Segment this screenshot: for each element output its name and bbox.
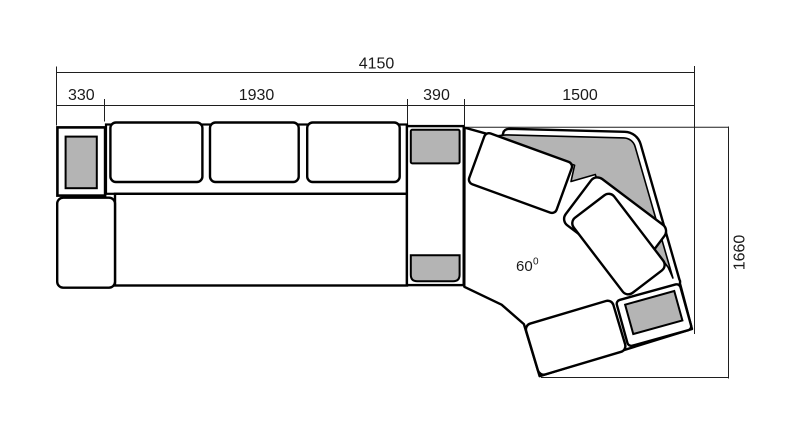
svg-text:330: 330 [68, 87, 95, 104]
svg-text:1930: 1930 [239, 87, 275, 104]
svg-text:0: 0 [533, 257, 539, 268]
svg-text:4150: 4150 [359, 56, 395, 73]
svg-text:60: 60 [516, 258, 533, 275]
svg-text:1660: 1660 [732, 235, 749, 271]
svg-text:390: 390 [423, 87, 450, 104]
svg-text:1500: 1500 [562, 87, 598, 104]
